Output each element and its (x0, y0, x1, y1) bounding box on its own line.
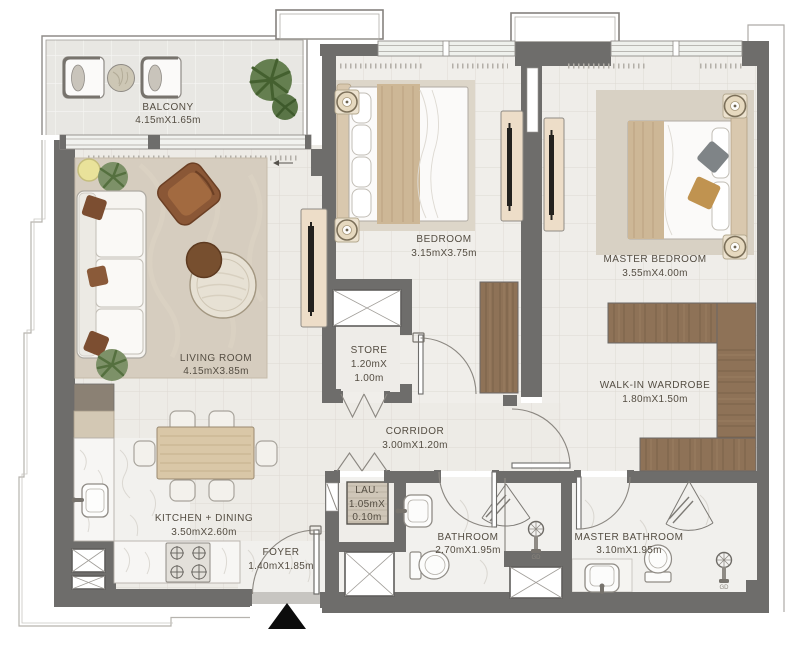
svg-text:STORE: STORE (351, 345, 388, 356)
svg-text:BALCONY: BALCONY (142, 102, 193, 113)
svg-text:3.10mX1.95m: 3.10mX1.95m (596, 545, 662, 556)
svg-text:BEDROOM: BEDROOM (416, 234, 471, 245)
svg-text:3.50mX2.60m: 3.50mX2.60m (171, 527, 237, 538)
svg-text:1.00m: 1.00m (354, 373, 383, 384)
svg-text:LAU.: LAU. (355, 485, 378, 496)
svg-text:KITCHEN + DINING: KITCHEN + DINING (155, 513, 253, 524)
svg-text:1.05mX: 1.05mX (349, 499, 385, 510)
svg-text:WALK-IN WARDROBE: WALK-IN WARDROBE (600, 380, 711, 391)
svg-text:GD: GD (532, 555, 542, 561)
svg-text:1.80mX1.50m: 1.80mX1.50m (622, 394, 688, 405)
svg-text:1.20mX: 1.20mX (351, 359, 387, 370)
svg-text:FOYER: FOYER (263, 547, 300, 558)
svg-text:3.00mX1.20m: 3.00mX1.20m (382, 440, 448, 451)
svg-text:0.10m: 0.10m (352, 512, 381, 523)
svg-text:MASTER BATHROOM: MASTER BATHROOM (575, 532, 684, 543)
svg-text:3.55mX4.00m: 3.55mX4.00m (622, 268, 688, 279)
svg-text:CORRIDOR: CORRIDOR (386, 426, 444, 437)
svg-text:3.15mX3.75m: 3.15mX3.75m (411, 248, 477, 259)
svg-text:4.15mX3.85m: 4.15mX3.85m (183, 366, 249, 377)
svg-text:LIVING ROOM: LIVING ROOM (180, 353, 252, 364)
svg-text:MASTER BEDROOM: MASTER BEDROOM (603, 254, 706, 265)
svg-text:1.40mX1.85m: 1.40mX1.85m (248, 561, 314, 572)
svg-text:BATHROOM: BATHROOM (437, 532, 498, 543)
svg-text:GD: GD (720, 585, 730, 591)
svg-text:2.70mX1.95m: 2.70mX1.95m (435, 545, 501, 556)
svg-text:4.15mX1.65m: 4.15mX1.65m (135, 115, 201, 126)
